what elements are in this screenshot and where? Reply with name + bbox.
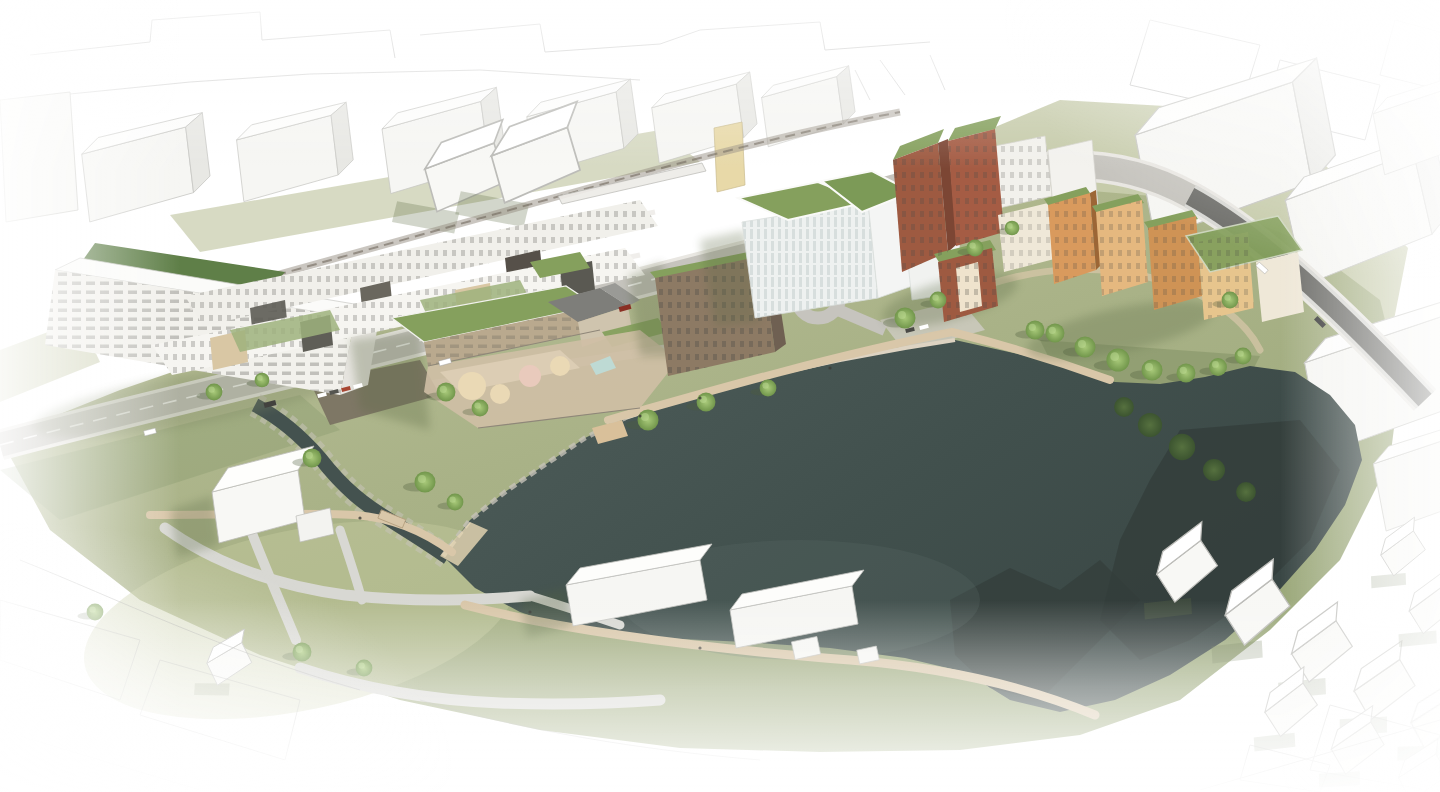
masterplan-render [0, 0, 1440, 792]
fade-bottom-left [0, 520, 460, 792]
person [638, 414, 641, 417]
play-circle-sand [550, 356, 570, 376]
person [828, 366, 831, 369]
person [358, 516, 361, 519]
play-circle-pink [519, 365, 541, 387]
person [698, 396, 701, 399]
office-glass-front [742, 202, 878, 318]
tree-dark [1169, 434, 1195, 460]
tree-dark [1138, 413, 1162, 437]
fade-top-right [1000, 0, 1440, 280]
tree-dark [1236, 482, 1256, 502]
play-circle-sand [490, 384, 510, 404]
tree-dark [1203, 459, 1225, 481]
render-canvas [0, 0, 1440, 792]
play-circle-sand [458, 372, 486, 400]
tree-dark [1114, 397, 1134, 417]
